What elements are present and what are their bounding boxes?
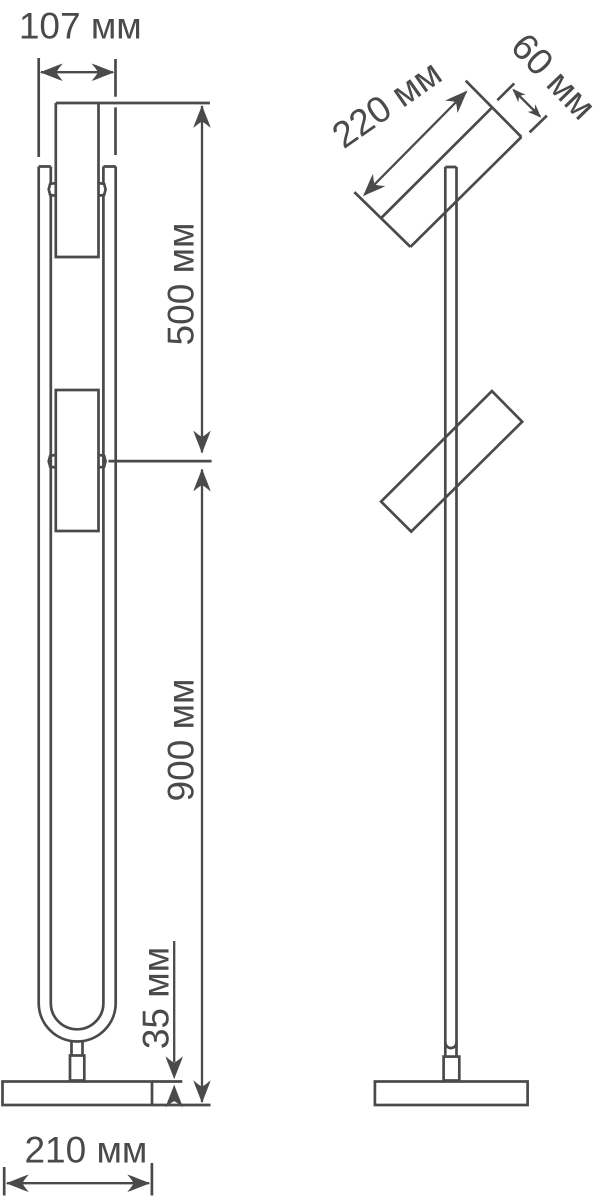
- svg-text:500 мм: 500 мм: [160, 223, 201, 346]
- svg-text:900 мм: 900 мм: [160, 679, 201, 802]
- svg-text:107 мм: 107 мм: [19, 6, 142, 47]
- svg-text:60 мм: 60 мм: [503, 25, 604, 127]
- svg-text:210 мм: 210 мм: [24, 1129, 147, 1170]
- svg-text:35 мм: 35 мм: [135, 947, 176, 1049]
- svg-text:220 мм: 220 мм: [325, 52, 449, 156]
